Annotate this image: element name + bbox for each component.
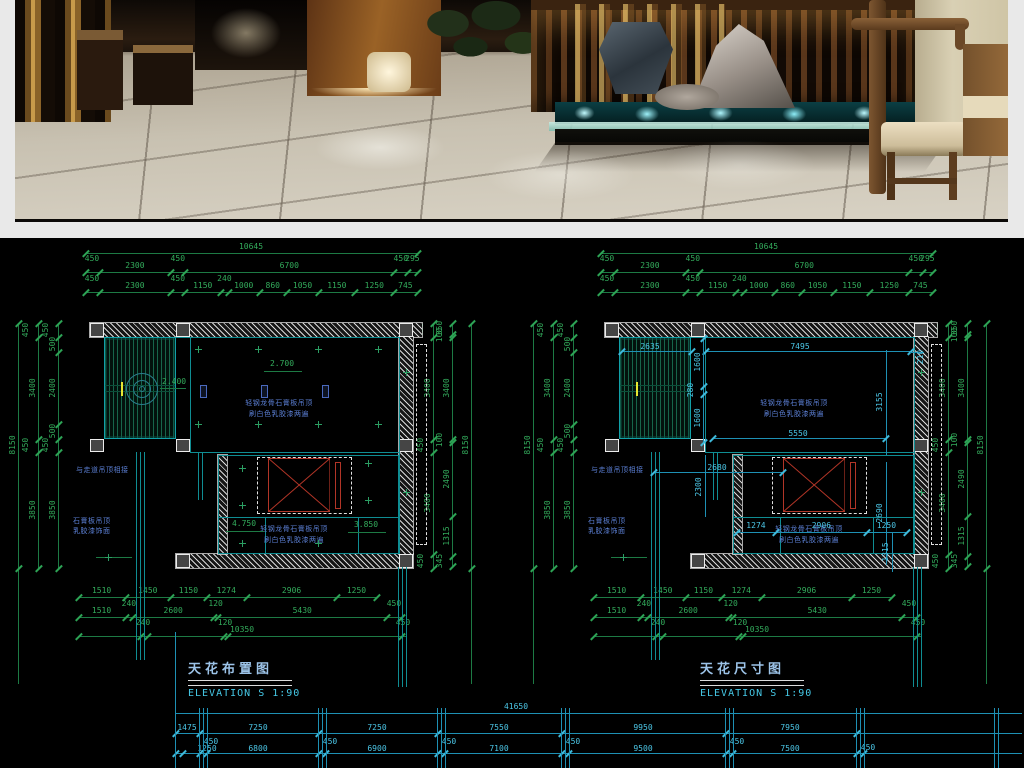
skylight-cross-symbol: [268, 458, 330, 512]
dim-label: 1150: [708, 282, 727, 290]
column: [605, 323, 619, 337]
ceiling-light-cross: [918, 489, 925, 496]
dim-label: 6700: [795, 262, 814, 270]
dim-label: 450: [323, 738, 337, 746]
dim-label: 1150: [193, 282, 212, 290]
dim-label: 1450: [138, 587, 157, 595]
yellow-marker: [121, 382, 123, 396]
dim-label: 10645: [239, 243, 263, 251]
dim-label: 240: [637, 600, 651, 608]
dim-label: 3400: [958, 378, 966, 397]
dim-label: 3155: [876, 392, 884, 411]
dim-label: 2906: [812, 522, 831, 530]
annotation-note: 刷白色乳胶漆两遍: [764, 410, 824, 419]
dim-label: 41650: [504, 703, 528, 711]
dim-label: 2.700: [270, 360, 294, 368]
chain-extension-line: [725, 708, 726, 768]
wood-chair-left: [77, 30, 123, 110]
dim-line: [886, 350, 887, 455]
edge-extension-line: [917, 567, 918, 687]
annotation-note: 石膏板吊顶: [588, 517, 626, 526]
dim-label: 100: [951, 328, 959, 342]
dim-line: [433, 323, 434, 568]
dim-label: 240: [732, 275, 746, 283]
title-underline: [188, 680, 292, 686]
dim-label: 450: [537, 438, 545, 452]
edge-extension-line: [402, 567, 403, 687]
dim-label: 1315: [958, 526, 966, 545]
dim-label: 450: [22, 323, 30, 337]
walkway-centerline: [96, 557, 132, 558]
dim-label: 2400: [564, 378, 572, 397]
ceiling-light-cross: [315, 421, 322, 428]
dim-line: [948, 323, 949, 568]
dim-label: 100: [951, 433, 959, 447]
corridor-glow: [211, 8, 281, 58]
dim-line: [471, 323, 472, 684]
dim-label: 450: [42, 323, 50, 337]
side-chair-cushion: [963, 96, 1008, 118]
floor-light-spot: [665, 140, 815, 190]
red-slot-symbol: [850, 462, 856, 509]
wall-bottom: [176, 554, 413, 568]
dim-label: 8150: [462, 436, 470, 455]
dim-label: 500: [564, 337, 572, 351]
chain-extension-line: [856, 708, 857, 768]
dim-line: [85, 292, 417, 293]
dim-label: 450: [686, 275, 700, 283]
dim-label: 450: [42, 438, 50, 452]
dim-label: 1510: [92, 587, 111, 595]
dim-label: 450: [557, 323, 565, 337]
skylight-cross-symbol: [783, 458, 845, 512]
hall-left-edge: [190, 337, 191, 453]
hall-right-edge: [914, 337, 915, 555]
dim-label: 1510: [607, 607, 626, 615]
dim-label: 450: [600, 275, 614, 283]
chair-leg: [887, 152, 895, 200]
column: [914, 554, 928, 568]
dim-line: [348, 532, 386, 533]
dim-label: 210: [917, 350, 925, 364]
floor-light-spot: [485, 150, 635, 200]
dim-label: 2635: [640, 343, 659, 351]
dim-label: 1000: [749, 282, 768, 290]
annotation-note: 乳胶漆饰面: [588, 527, 626, 536]
ceiling-light-cross: [105, 554, 112, 561]
photo-band: [0, 0, 1024, 238]
dim-label: 450: [171, 275, 185, 283]
dim-label: 3400: [443, 378, 451, 397]
chain-extension-line: [207, 708, 208, 768]
dim-line: [175, 753, 1022, 754]
edge-extension-line: [398, 567, 399, 687]
dim-label: 295: [920, 255, 934, 263]
dim-label: 450: [171, 255, 185, 263]
dim-line: [573, 323, 574, 568]
dim-label: 3850: [29, 500, 37, 519]
walkway-line: [144, 452, 145, 660]
dim-label: 8150: [524, 436, 532, 455]
chain-extension-line: [437, 708, 438, 768]
ceiling-light-cross: [365, 460, 372, 467]
dim-label: 1250: [880, 282, 899, 290]
dim-label: 240: [217, 275, 231, 283]
annotation-note: 石膏板吊顶: [73, 517, 111, 526]
ceiling-light-cross: [375, 346, 382, 353]
dim-label: 4.750: [232, 520, 256, 528]
column: [399, 323, 413, 337]
dim-label: 1510: [92, 607, 111, 615]
dim-label: 120: [208, 600, 222, 608]
dim-label: 745: [398, 282, 412, 290]
plan-title-left-text: 天花布置图: [188, 662, 300, 678]
dim-label: 3400: [29, 378, 37, 397]
curtain-wall-dashed: [416, 344, 427, 545]
dim-label: 1050: [293, 282, 312, 290]
dim-label: 1315: [882, 542, 890, 561]
dim-label: 10645: [754, 243, 778, 251]
chair-stretcher: [887, 178, 957, 184]
wood-table-left: [133, 45, 193, 105]
column: [399, 554, 413, 568]
dim-label: 1600: [694, 408, 702, 427]
ceiling-light-cross: [403, 369, 410, 376]
walkway-line: [655, 452, 656, 660]
dim-label: 240: [136, 619, 150, 627]
ceiling-light-cross: [918, 369, 925, 376]
column: [399, 439, 413, 453]
chain-extension-line: [733, 708, 734, 768]
hall-top-edge: [691, 337, 914, 338]
chain-extension-line: [998, 708, 999, 768]
dim-label: 450: [932, 554, 940, 568]
column: [176, 554, 190, 568]
curtain-wall-dashed: [931, 344, 942, 545]
walkway-line: [140, 452, 141, 660]
dim-label: 860: [266, 282, 280, 290]
chain-extension-line: [326, 708, 327, 768]
column: [914, 439, 928, 453]
dim-line: [600, 292, 932, 293]
dim-line: [85, 253, 417, 254]
dim-line: [986, 323, 987, 684]
dim-label: 1450: [653, 587, 672, 595]
dim-line: [452, 323, 453, 566]
plan-title-left-scale: ELEVATION S 1:90: [188, 688, 300, 700]
dim-label: 450: [537, 323, 545, 337]
ceiling-light-cross: [365, 497, 372, 504]
dim-line: [703, 338, 704, 442]
dim-line: [533, 323, 534, 684]
dim-label: 7100: [489, 745, 508, 753]
dim-line: [175, 632, 176, 768]
tall-chair-seat: [881, 122, 967, 156]
floor-light-spot: [315, 125, 445, 170]
light-fixture-rect: [200, 385, 207, 398]
dim-label: 6800: [248, 745, 267, 753]
dim-label: 1315: [443, 526, 451, 545]
dim-line: [78, 636, 407, 637]
dim-label: 1150: [842, 282, 861, 290]
dim-label: 450: [22, 438, 30, 452]
walkway-line: [717, 452, 718, 500]
ceiling-light-cross: [315, 540, 322, 547]
dim-line: [705, 455, 706, 517]
walkway-line: [651, 452, 652, 660]
column: [691, 554, 705, 568]
chain-extension-line: [445, 708, 446, 768]
dim-label: 2300: [125, 282, 144, 290]
dim-label: 100: [436, 328, 444, 342]
dim-label: 450: [686, 255, 700, 263]
dim-label: 450: [600, 255, 614, 263]
hall-right-edge: [399, 337, 400, 555]
dim-label: 745: [913, 282, 927, 290]
small-stone: [655, 84, 719, 110]
dim-label: 2300: [695, 477, 703, 496]
dim-label: 1250: [347, 587, 366, 595]
dim-line: [600, 272, 932, 273]
chain-extension-line: [864, 708, 865, 768]
dim-label: 2906: [282, 587, 301, 595]
light-fixture-rect: [322, 385, 329, 398]
dim-label: 1274: [746, 522, 765, 530]
dim-label: 7500: [780, 745, 799, 753]
dim-label: 5430: [808, 607, 827, 615]
dim-label: 280: [687, 383, 695, 397]
dim-label: 1000: [234, 282, 253, 290]
chain-extension-line: [860, 708, 861, 768]
walkway-line: [136, 452, 137, 660]
dim-label: 7250: [248, 724, 267, 732]
annotation-note: 刷白色乳胶漆两遍: [249, 410, 309, 419]
chair-leg: [949, 152, 957, 200]
ceiling-fan-symbol: [139, 386, 145, 392]
chain-extension-line: [318, 708, 319, 768]
dim-line: [58, 323, 59, 568]
dim-label: 2400: [49, 378, 57, 397]
annotation-note: 轻钢龙骨石膏板吊顶: [760, 399, 828, 408]
dim-label: 500: [564, 424, 572, 438]
dim-label: 3850: [564, 500, 572, 519]
dim-label: 2300: [640, 262, 659, 270]
red-slot-symbol: [335, 462, 341, 509]
tall-chair-rail: [851, 18, 969, 30]
dim-label: 1250: [365, 282, 384, 290]
dim-label: 2690: [876, 503, 884, 522]
chain-extension-line: [994, 708, 995, 768]
dim-label: 7250: [367, 724, 386, 732]
dim-line: [18, 323, 19, 684]
dim-line: [600, 253, 932, 254]
ceiling-light-cross: [315, 346, 322, 353]
dim-label: 3850: [49, 500, 57, 519]
wall-top: [90, 323, 422, 337]
walkway-centerline: [611, 557, 647, 558]
slat-divider: [620, 391, 691, 392]
chain-extension-line: [322, 708, 323, 768]
dim-label: 6700: [280, 262, 299, 270]
dim-line: [160, 388, 186, 389]
dim-label: 2490: [958, 469, 966, 488]
dim-line: [175, 713, 1022, 714]
dim-label: 5430: [293, 607, 312, 615]
dim-label: 345: [951, 554, 959, 568]
chain-extension-line: [569, 708, 570, 768]
annotation-note: 轻钢龙骨石膏板吊顶: [245, 399, 313, 408]
dim-label: 9950: [633, 724, 652, 732]
dim-label: 6900: [367, 745, 386, 753]
dim-label: 2.400: [162, 378, 186, 386]
dim-line: [967, 323, 968, 566]
dim-label: 500: [49, 424, 57, 438]
ceiling-light-cross: [239, 465, 246, 472]
dim-label: 1050: [808, 282, 827, 290]
dim-label: 450: [557, 438, 565, 452]
column: [176, 323, 190, 337]
annotation-note: 与走道吊顶相接: [76, 466, 129, 475]
dim-line: [85, 272, 417, 273]
interior-photo: [15, 0, 1008, 222]
ceiling-light-cross: [403, 489, 410, 496]
dim-line: [226, 531, 264, 532]
column: [691, 323, 705, 337]
dim-label: 7495: [790, 343, 809, 351]
plan-title-right: 天花尺寸图 ELEVATION S 1:90: [700, 662, 812, 700]
ceiling-light-cross: [375, 421, 382, 428]
dim-label: 5550: [788, 430, 807, 438]
walkway-line: [202, 452, 203, 500]
hall-top-edge: [176, 337, 399, 338]
chain-extension-line: [441, 708, 442, 768]
dim-line: [264, 371, 302, 372]
dim-label: 450: [861, 744, 875, 752]
dim-label: 2680: [707, 464, 726, 472]
dim-label: 1250: [877, 522, 896, 530]
column: [90, 439, 104, 453]
dim-line: [892, 532, 893, 572]
dim-label: 8150: [9, 436, 17, 455]
dim-label: 2300: [125, 262, 144, 270]
dim-label: 3850: [544, 500, 552, 519]
dim-label: 120: [723, 600, 737, 608]
ceiling-light-cross: [620, 554, 627, 561]
column: [176, 439, 190, 453]
dim-line: [38, 323, 39, 568]
dim-line: [736, 532, 906, 533]
walkway-line: [713, 452, 714, 500]
dim-line: [553, 323, 554, 568]
ceiling-light-cross: [255, 421, 262, 428]
dim-label: 8150: [977, 436, 985, 455]
dim-line: [653, 472, 782, 473]
dim-label: 2600: [164, 607, 183, 615]
chain-extension-line: [203, 708, 204, 768]
dim-label: 1600: [694, 352, 702, 371]
design-sheet-page: 天花布置图 ELEVATION S 1:90 天花尺寸图 ELEVATION S…: [0, 0, 1024, 768]
dim-label: 450: [566, 738, 580, 746]
dim-label: 240: [651, 619, 665, 627]
dim-label: 2600: [679, 607, 698, 615]
wall-top: [605, 323, 937, 337]
chain-extension-line: [561, 708, 562, 768]
slat-divider: [620, 385, 691, 386]
dim-label: 450: [85, 255, 99, 263]
cad-drawing-area: 天花布置图 ELEVATION S 1:90 天花尺寸图 ELEVATION S…: [0, 238, 1024, 768]
dim-line: [175, 733, 1022, 734]
chain-extension-line: [729, 708, 730, 768]
hall-bottom-edge: [705, 452, 914, 453]
hall-bottom-edge: [190, 452, 399, 453]
ceiling-light-cross: [195, 346, 202, 353]
edge-extension-line: [913, 567, 914, 687]
title-underline: [700, 680, 804, 686]
dim-label: 1475: [177, 724, 196, 732]
dim-label: 10350: [230, 626, 254, 634]
annotation-note: 轻钢龙骨石膏板吊顶: [260, 525, 328, 534]
walkway-line: [659, 452, 660, 660]
lower-band-line: [218, 517, 399, 518]
dim-label: 1150: [179, 587, 198, 595]
dim-label: 1274: [217, 587, 236, 595]
dim-label: 295: [405, 255, 419, 263]
dim-label: 1274: [732, 587, 751, 595]
annotation-note: 刷白色乳胶漆两遍: [779, 536, 839, 545]
dim-label: 1150: [327, 282, 346, 290]
yellow-marker: [636, 382, 638, 396]
walkway-line: [198, 452, 199, 500]
dim-label: 450: [730, 738, 744, 746]
plan-title-right-scale: ELEVATION S 1:90: [700, 688, 812, 700]
column: [914, 323, 928, 337]
dim-label: 450: [902, 600, 916, 608]
dim-label: 240: [122, 600, 136, 608]
edge-extension-line: [921, 567, 922, 687]
dim-label: 7950: [780, 724, 799, 732]
dim-label: 450: [442, 738, 456, 746]
plan-title-left: 天花布置图 ELEVATION S 1:90: [188, 662, 300, 700]
dim-label: 2906: [797, 587, 816, 595]
dim-label: 100: [436, 433, 444, 447]
dim-label: 500: [49, 337, 57, 351]
dim-line: [712, 438, 885, 439]
ceiling-light-cross: [195, 421, 202, 428]
dim-line: [705, 351, 910, 352]
dim-label: 1150: [694, 587, 713, 595]
annotation-note: 乳胶漆饰面: [73, 527, 111, 536]
dim-line: [593, 636, 922, 637]
dim-line: [621, 351, 691, 352]
ceiling-light-cross: [255, 346, 262, 353]
dim-label: 1510: [607, 587, 626, 595]
plan-title-right-text: 天花尺寸图: [700, 662, 812, 678]
dim-label: 345: [436, 554, 444, 568]
dim-label: 7550: [489, 724, 508, 732]
annotation-note: 与走道吊顶相接: [591, 466, 644, 475]
dim-label: 3400: [544, 378, 552, 397]
dim-label: 2490: [443, 469, 451, 488]
dim-label: 3.850: [354, 521, 378, 529]
dim-label: 2300: [640, 282, 659, 290]
chain-extension-line: [199, 708, 200, 768]
edge-extension-line: [406, 567, 407, 687]
dim-label: 450: [387, 600, 401, 608]
light-fixture-rect: [261, 385, 268, 398]
ceiling-light-cross: [239, 502, 246, 509]
dim-label: 860: [781, 282, 795, 290]
dim-label: 10350: [745, 626, 769, 634]
